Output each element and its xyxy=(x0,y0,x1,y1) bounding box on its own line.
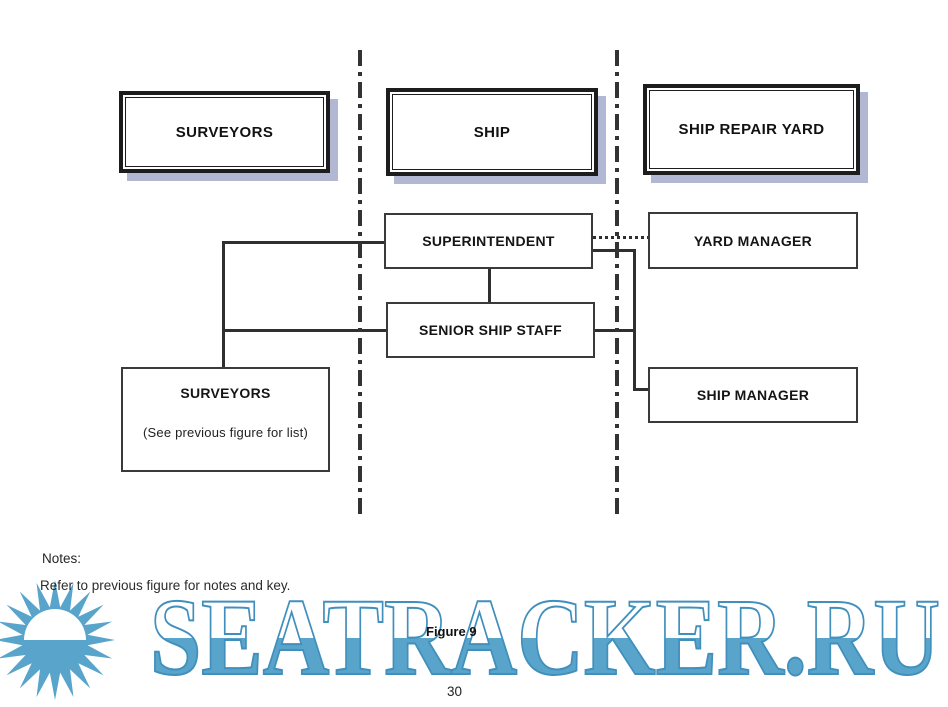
connector-senior-ship-staff-to-left-bus xyxy=(222,329,387,332)
connector-right-bus-to-ship-manager xyxy=(633,388,649,391)
notes-body: Refer to previous figure for notes and k… xyxy=(40,578,290,593)
figure-caption: Figure 9 xyxy=(426,624,477,639)
node-yard-manager-label: YARD MANAGER xyxy=(694,233,812,249)
seatracker-watermark: SEATRACKER.RU xyxy=(0,575,948,707)
node-senior-ship-staff-label: SENIOR SHIP STAFF xyxy=(419,322,562,338)
node-surveyors-group-sublabel: (See previous figure for list) xyxy=(143,425,308,440)
node-ship-manager-label: SHIP MANAGER xyxy=(697,387,809,403)
column-header-surveyors: SURVEYORS xyxy=(119,91,330,173)
column-separator-right xyxy=(615,50,619,520)
node-surveyors-group-label: SURVEYORS xyxy=(180,385,270,401)
column-separator-left xyxy=(358,50,362,520)
connector-right-bus xyxy=(633,249,636,391)
watermark-text: SEATRACKER.RU xyxy=(150,576,940,698)
page-number: 30 xyxy=(447,684,462,699)
document-page: SURVEYORS SHIP SHIP REPAIR YARD SUPERINT… xyxy=(0,0,948,707)
column-header-ship-repair-yard-label: SHIP REPAIR YARD xyxy=(649,90,854,169)
connector-left-bus-to-surveyors xyxy=(222,241,225,368)
node-superintendent-label: SUPERINTENDENT xyxy=(422,233,555,249)
column-header-surveyors-label: SURVEYORS xyxy=(125,97,324,167)
node-yard-manager: YARD MANAGER xyxy=(648,212,858,269)
sun-disk-icon xyxy=(24,609,86,671)
connector-superintendent-to-yard-manager-dotted xyxy=(593,236,648,239)
connector-senior-ship-staff-to-right-bus xyxy=(595,329,633,332)
column-header-ship-label: SHIP xyxy=(392,94,592,170)
node-senior-ship-staff: SENIOR SHIP STAFF xyxy=(386,302,595,358)
node-superintendent: SUPERINTENDENT xyxy=(384,213,593,269)
node-ship-manager: SHIP MANAGER xyxy=(648,367,858,423)
column-header-ship: SHIP xyxy=(386,88,598,176)
sun-dome-icon xyxy=(24,609,86,640)
column-header-ship-repair-yard: SHIP REPAIR YARD xyxy=(643,84,860,175)
node-surveyors-group: SURVEYORS (See previous figure for list) xyxy=(121,367,330,472)
notes-heading: Notes: xyxy=(42,551,81,566)
connector-superintendent-to-senior-ship-staff xyxy=(488,268,491,303)
sun-rays-icon xyxy=(0,580,115,700)
